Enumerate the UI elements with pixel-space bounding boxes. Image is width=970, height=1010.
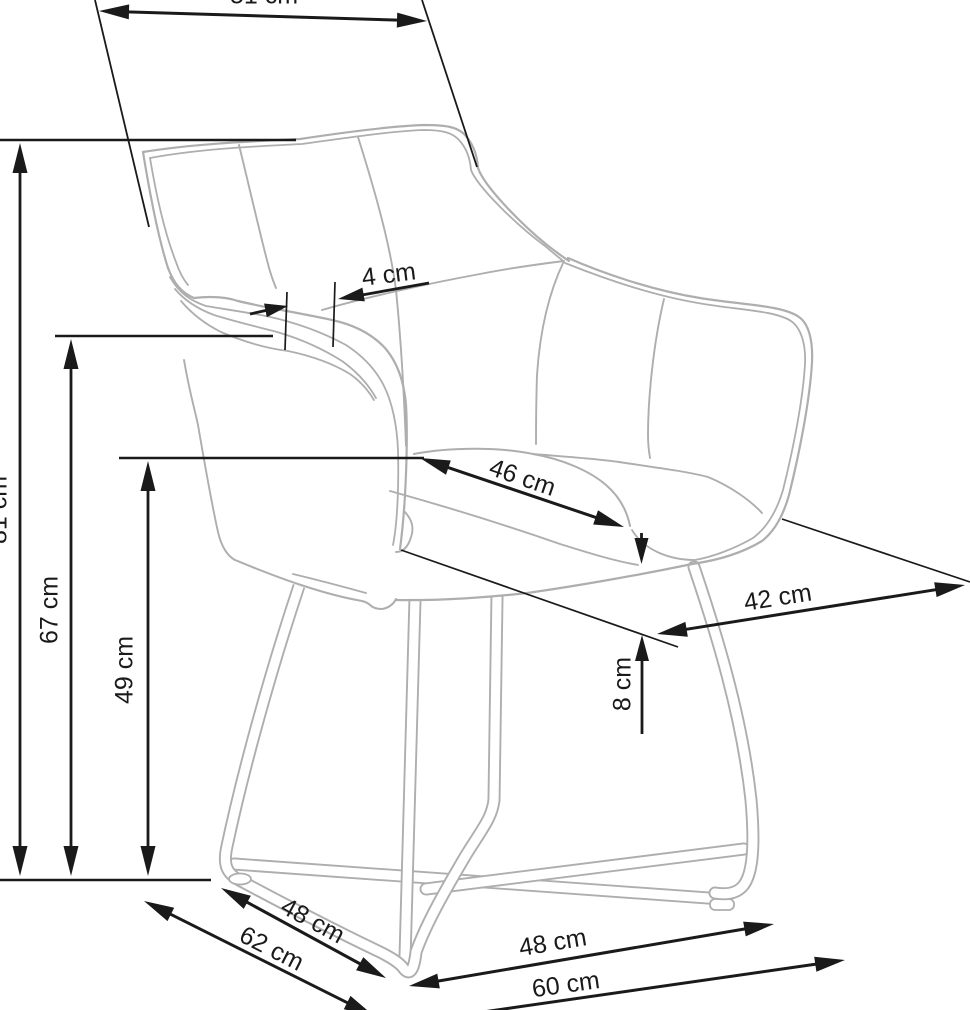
svg-text:51 cm: 51 cm [230,0,298,10]
svg-text:67 cm: 67 cm [36,576,64,644]
svg-text:49 cm: 49 cm [111,636,139,704]
svg-text:81 cm: 81 cm [0,476,13,544]
svg-text:8 cm: 8 cm [609,657,637,711]
